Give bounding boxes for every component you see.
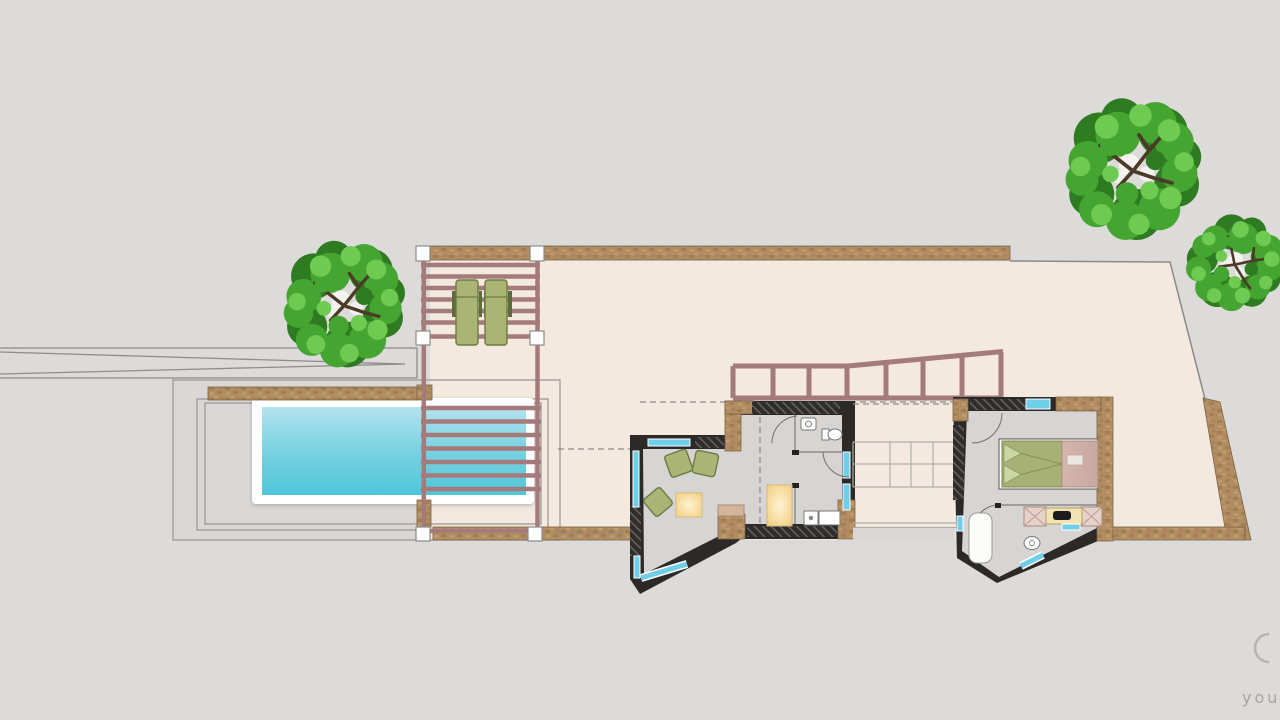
coffee-table: [676, 493, 702, 517]
site-plan: you: [0, 0, 1280, 720]
bench-wall: [718, 514, 745, 539]
bathtub: [969, 513, 992, 563]
counter: [819, 511, 840, 525]
watermark-text: you: [1242, 688, 1280, 707]
terrace-wall-north: [430, 246, 1010, 260]
lower-terrace: [853, 528, 955, 540]
floor-plan-canvas: you: [0, 0, 1280, 720]
sink: [801, 418, 816, 430]
bench: [718, 505, 744, 516]
bed: [999, 439, 1098, 489]
dining-table: [767, 485, 792, 526]
toilet: [828, 429, 842, 440]
toilet: [1024, 537, 1040, 550]
sun-lounger: [456, 280, 478, 345]
armchair: [692, 450, 719, 477]
vanity-sink: [1053, 511, 1071, 520]
sun-lounger: [485, 280, 507, 345]
garden-wall-west: [208, 387, 418, 400]
